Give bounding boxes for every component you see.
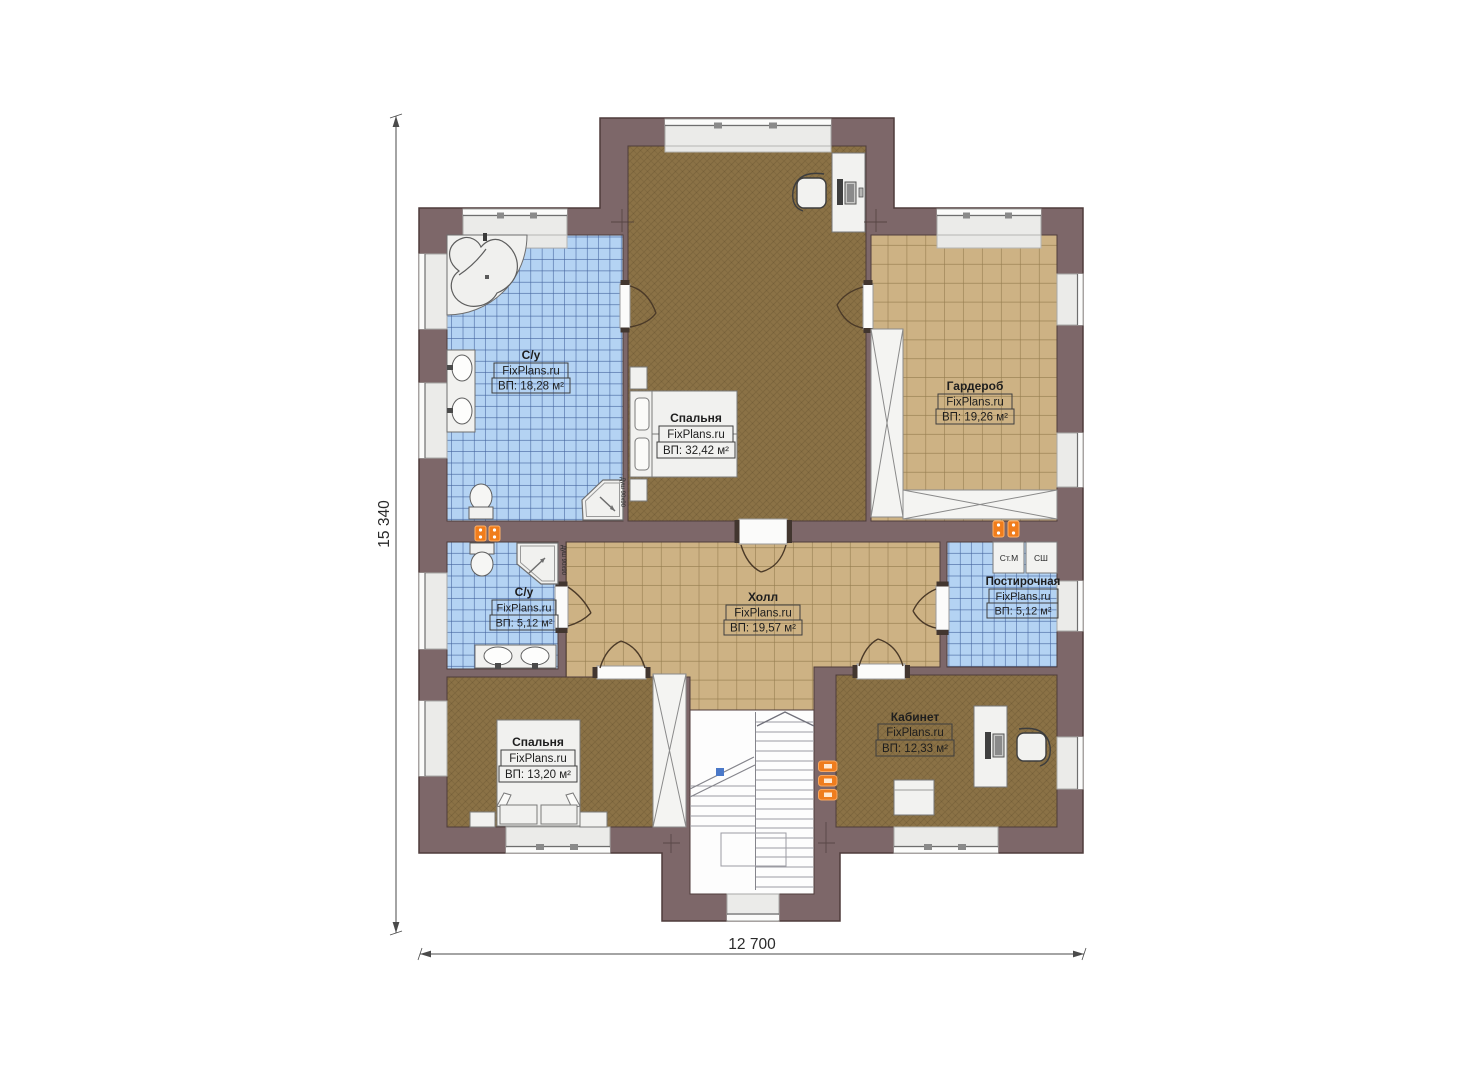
svg-text:FixPlans.ru: FixPlans.ru bbox=[946, 397, 1004, 409]
svg-text:Кабинет: Кабинет bbox=[891, 710, 940, 724]
svg-text:С/у: С/у bbox=[515, 585, 534, 599]
svg-text:Постирочная: Постирочная bbox=[986, 576, 1061, 588]
svg-text:Душ 90х90: Душ 90х90 bbox=[619, 477, 625, 508]
svg-text:ВП: 19,57 м²: ВП: 19,57 м² bbox=[730, 623, 796, 635]
svg-text:Спальня: Спальня bbox=[670, 411, 722, 425]
svg-text:ВП: 5,12 м²: ВП: 5,12 м² bbox=[495, 618, 552, 630]
svg-text:ВП: 32,42 м²: ВП: 32,42 м² bbox=[663, 445, 729, 457]
svg-text:ВП: 12,33 м²: ВП: 12,33 м² bbox=[882, 743, 948, 755]
svg-text:СШ: СШ bbox=[1034, 553, 1048, 563]
svg-text:ВП: 18,28 м²: ВП: 18,28 м² bbox=[498, 381, 564, 393]
svg-text:Спальня: Спальня bbox=[512, 735, 564, 749]
svg-text:ВП: 13,20 м²: ВП: 13,20 м² bbox=[505, 769, 571, 781]
svg-text:Холл: Холл bbox=[748, 590, 778, 604]
svg-text:15 340: 15 340 bbox=[376, 500, 393, 548]
svg-text:ВП: 5,12 м²: ВП: 5,12 м² bbox=[994, 606, 1051, 618]
svg-text:FixPlans.ru: FixPlans.ru bbox=[734, 608, 792, 620]
svg-text:Ст.М: Ст.М bbox=[1000, 553, 1019, 563]
svg-text:FixPlans.ru: FixPlans.ru bbox=[667, 429, 725, 441]
svg-text:С/у: С/у bbox=[522, 348, 541, 362]
svg-text:ВП: 19,26 м²: ВП: 19,26 м² bbox=[942, 412, 1008, 424]
svg-text:FixPlans.ru: FixPlans.ru bbox=[496, 603, 551, 615]
svg-text:Гардероб: Гардероб bbox=[947, 379, 1004, 393]
svg-text:FixPlans.ru: FixPlans.ru bbox=[995, 591, 1050, 603]
svg-text:FixPlans.ru: FixPlans.ru bbox=[886, 727, 944, 739]
svg-text:FixPlans.ru: FixPlans.ru bbox=[502, 366, 560, 378]
svg-text:Душ 90х90: Душ 90х90 bbox=[560, 545, 566, 576]
svg-text:12 700: 12 700 bbox=[728, 936, 776, 953]
svg-text:FixPlans.ru: FixPlans.ru bbox=[509, 753, 567, 765]
